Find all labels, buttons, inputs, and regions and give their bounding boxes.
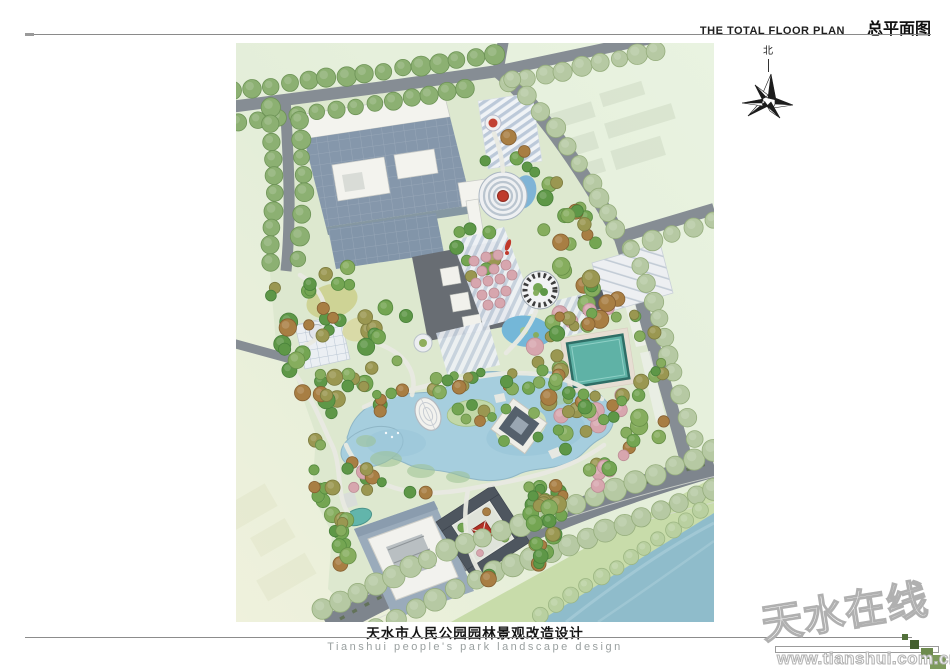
site-plan-svg	[236, 43, 714, 622]
north-arrow: 北	[736, 42, 800, 120]
north-label: 北	[736, 42, 800, 57]
page-footer: 天水市人民公园园林景观改造设计	[0, 622, 950, 643]
footer-rule	[25, 637, 912, 638]
footer-title-zh: 天水市人民公园园林景观改造设计	[366, 626, 584, 641]
north-compass-icon	[742, 73, 794, 119]
watermark-square	[930, 655, 946, 669]
site-plan-image	[236, 43, 714, 622]
plaza-red-center	[498, 191, 509, 202]
header-rule	[25, 34, 931, 35]
footer-subtitle-en: Tianshui people's park landscape design	[0, 641, 950, 653]
presentation-board: { "header": { "title_en": "THE TOTAL FLO…	[0, 0, 950, 671]
page-header: THE TOTAL FLOOR PLAN 总平面图	[700, 15, 931, 39]
header-title-en: THE TOTAL FLOOR PLAN	[700, 25, 845, 37]
header-title-zh: 总平面图	[867, 15, 931, 39]
entrance-red-feature	[489, 119, 498, 128]
sundial-plaza	[521, 271, 559, 309]
north-line	[768, 59, 769, 72]
